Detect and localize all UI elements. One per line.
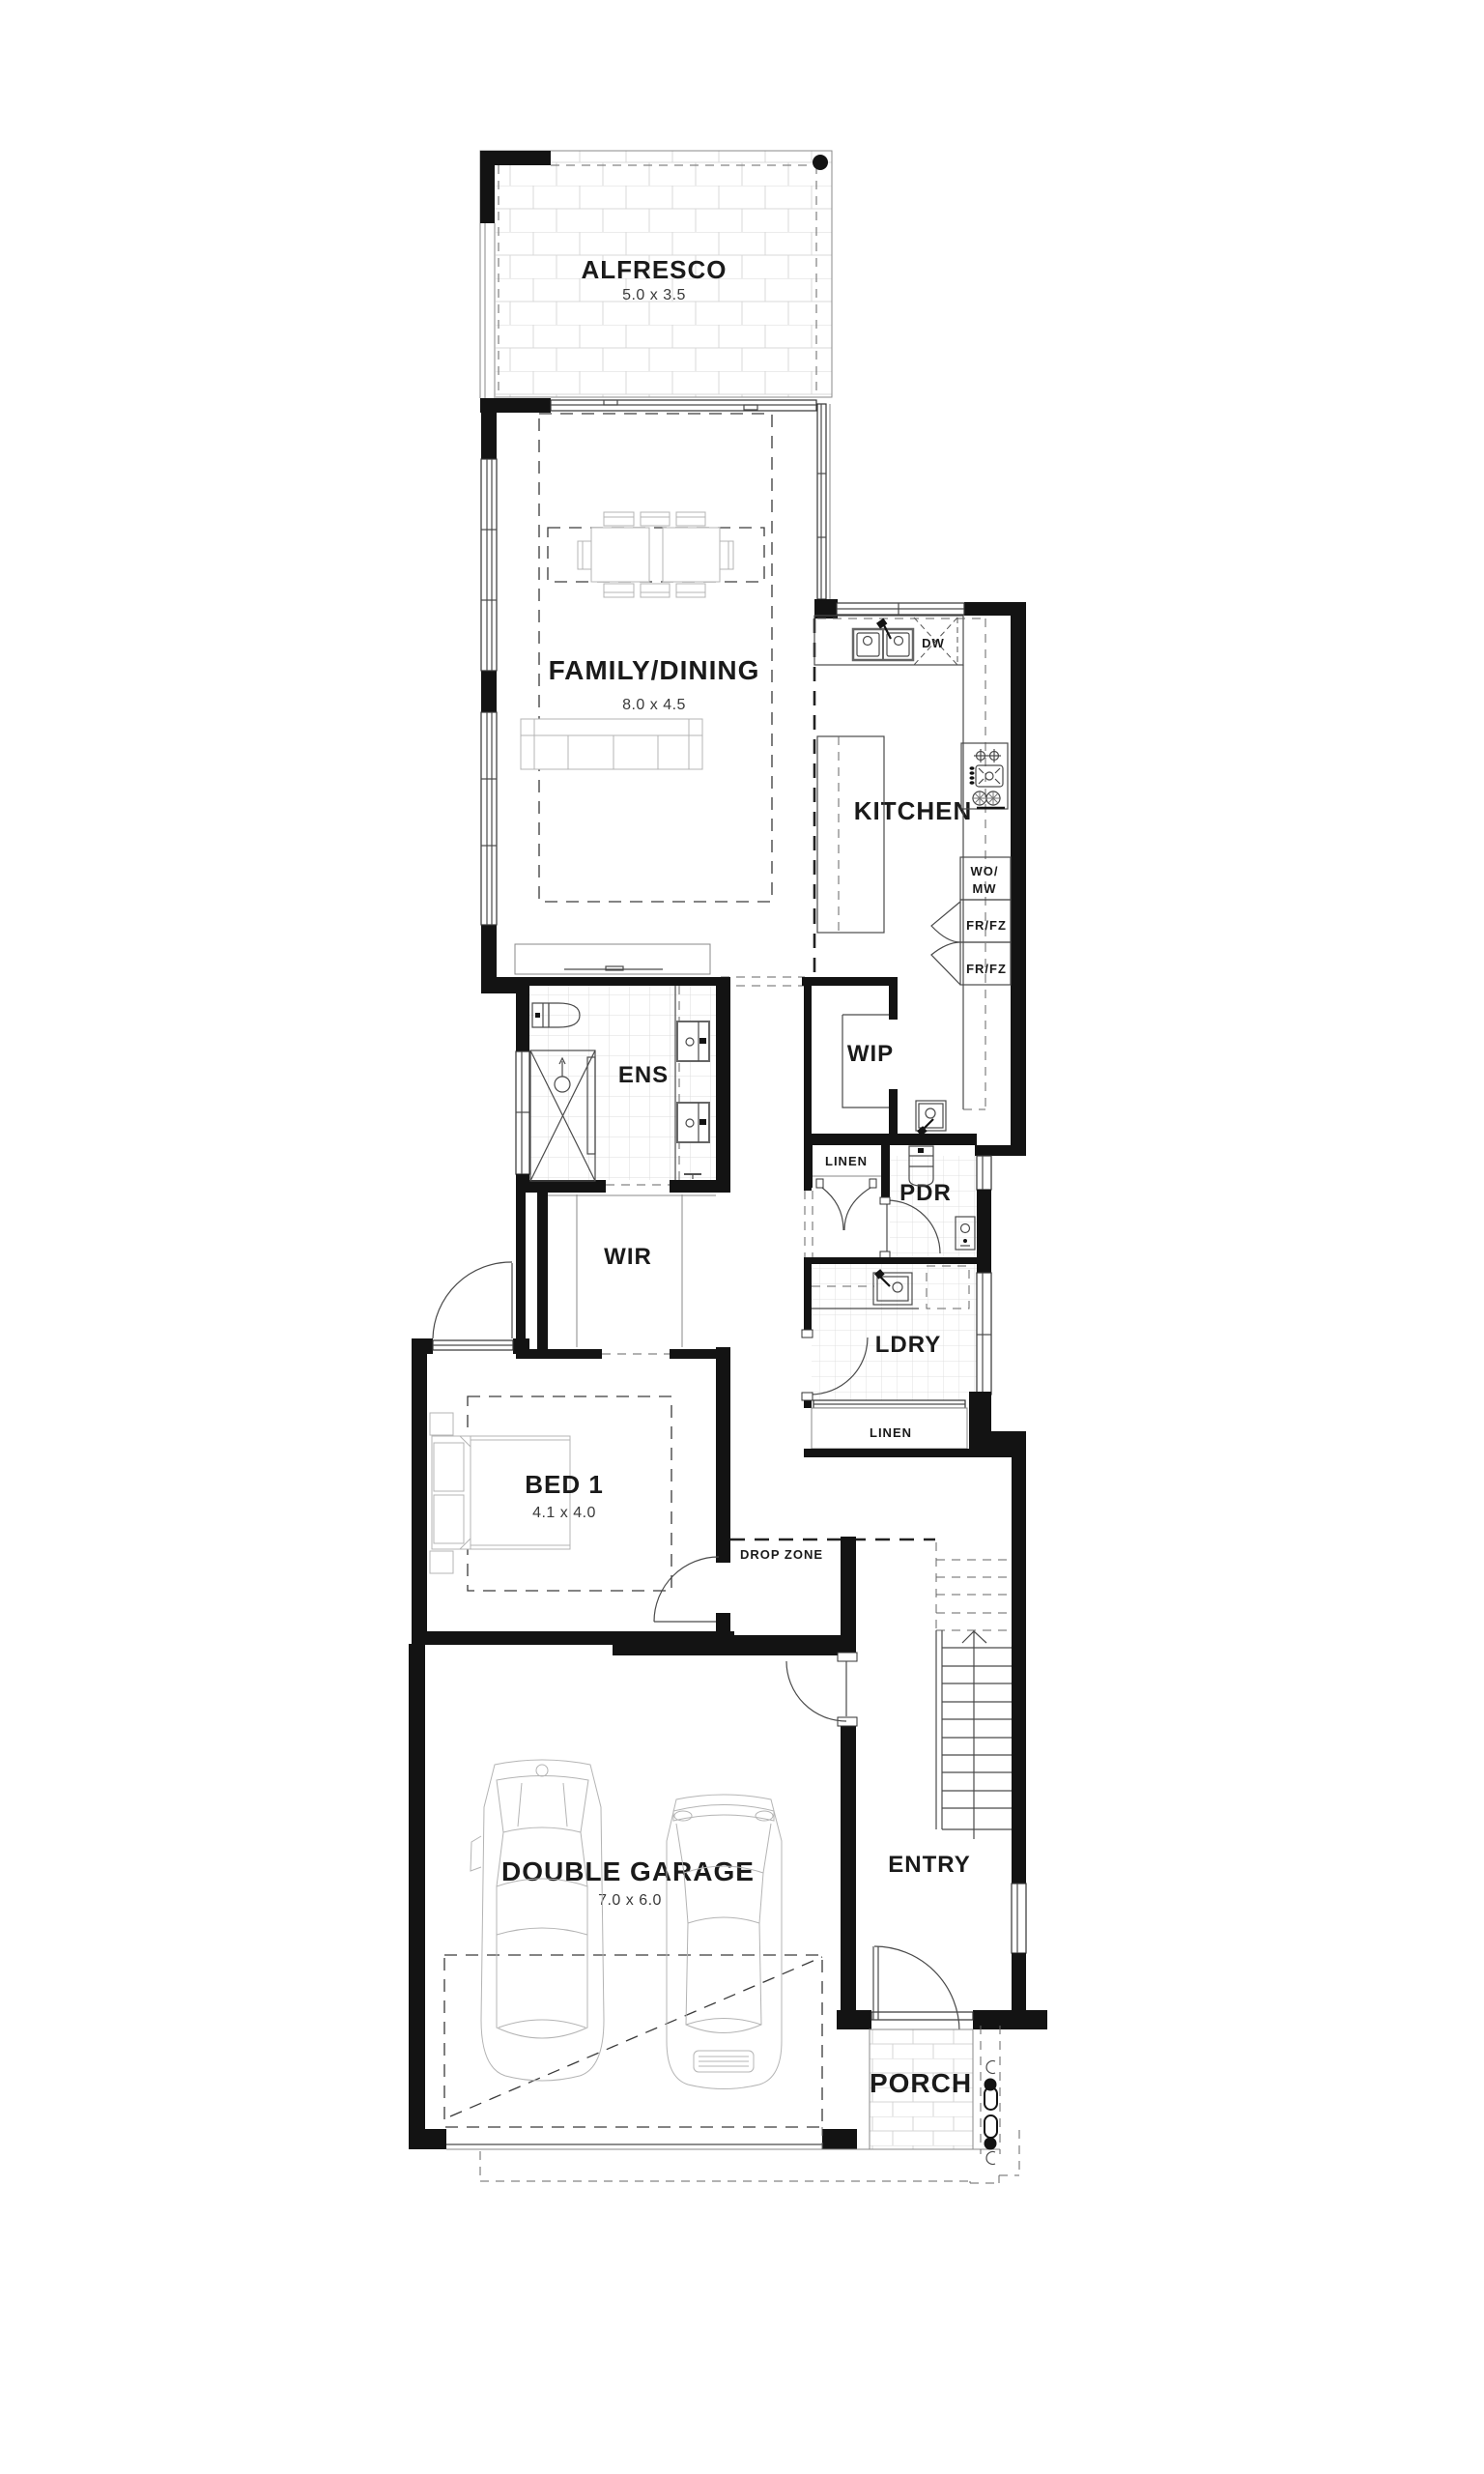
svg-text:4.1 x 4.0: 4.1 x 4.0: [532, 1505, 596, 1521]
svg-text:DOUBLE GARAGE: DOUBLE GARAGE: [501, 1856, 755, 1886]
svg-text:BED 1: BED 1: [525, 1470, 604, 1499]
svg-text:WIR: WIR: [604, 1244, 652, 1270]
svg-text:ENTRY: ENTRY: [888, 1852, 970, 1878]
svg-text:PORCH: PORCH: [870, 2068, 972, 2098]
svg-text:FR/FZ: FR/FZ: [966, 918, 1007, 933]
svg-text:PDR: PDR: [899, 1180, 952, 1206]
svg-text:FAMILY/DINING: FAMILY/DINING: [549, 655, 760, 685]
svg-text:DROP ZONE: DROP ZONE: [740, 1547, 823, 1562]
svg-text:8.0 x 4.5: 8.0 x 4.5: [622, 697, 686, 713]
svg-text:DW: DW: [922, 636, 945, 650]
svg-text:MW: MW: [972, 881, 996, 896]
svg-text:ALFRESCO: ALFRESCO: [582, 255, 728, 284]
svg-text:WIP: WIP: [847, 1041, 894, 1067]
svg-text:7.0 x 6.0: 7.0 x 6.0: [598, 1892, 662, 1909]
svg-text:KITCHEN: KITCHEN: [854, 796, 973, 825]
svg-text:LINEN: LINEN: [825, 1154, 868, 1168]
svg-text:WO/: WO/: [971, 864, 999, 878]
svg-text:FR/FZ: FR/FZ: [966, 962, 1007, 976]
svg-text:ENS: ENS: [618, 1062, 669, 1088]
svg-text:LDRY: LDRY: [875, 1332, 941, 1358]
svg-text:LINEN: LINEN: [870, 1425, 912, 1440]
svg-text:5.0 x 3.5: 5.0 x 3.5: [622, 287, 686, 303]
